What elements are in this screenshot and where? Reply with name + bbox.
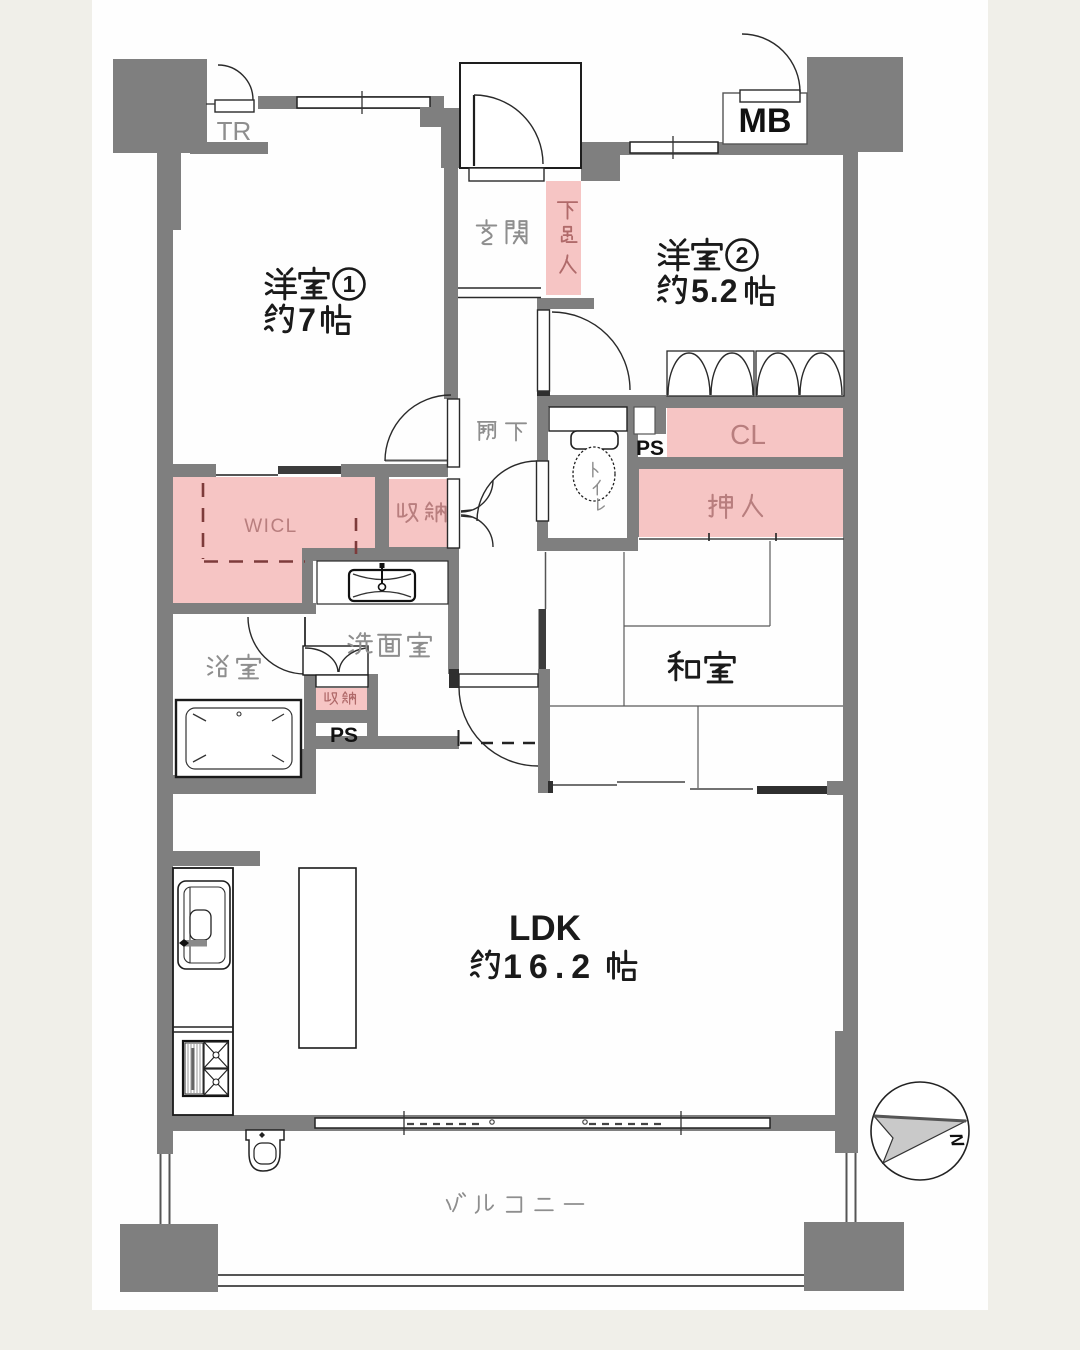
svg-text:16.2: 16.2: [503, 948, 597, 986]
svg-text:5.2: 5.2: [691, 273, 738, 309]
svg-text:MB: MB: [739, 102, 792, 140]
svg-text:1: 1: [343, 271, 356, 297]
svg-text:LDK: LDK: [509, 909, 581, 948]
svg-text:CL: CL: [730, 419, 766, 450]
svg-text:PS: PS: [636, 437, 664, 460]
svg-text:7: 7: [298, 302, 316, 338]
svg-text:WICL: WICL: [244, 516, 298, 537]
svg-text:2: 2: [736, 242, 749, 268]
svg-text:TR: TR: [217, 116, 252, 146]
svg-text:PS: PS: [330, 724, 358, 747]
